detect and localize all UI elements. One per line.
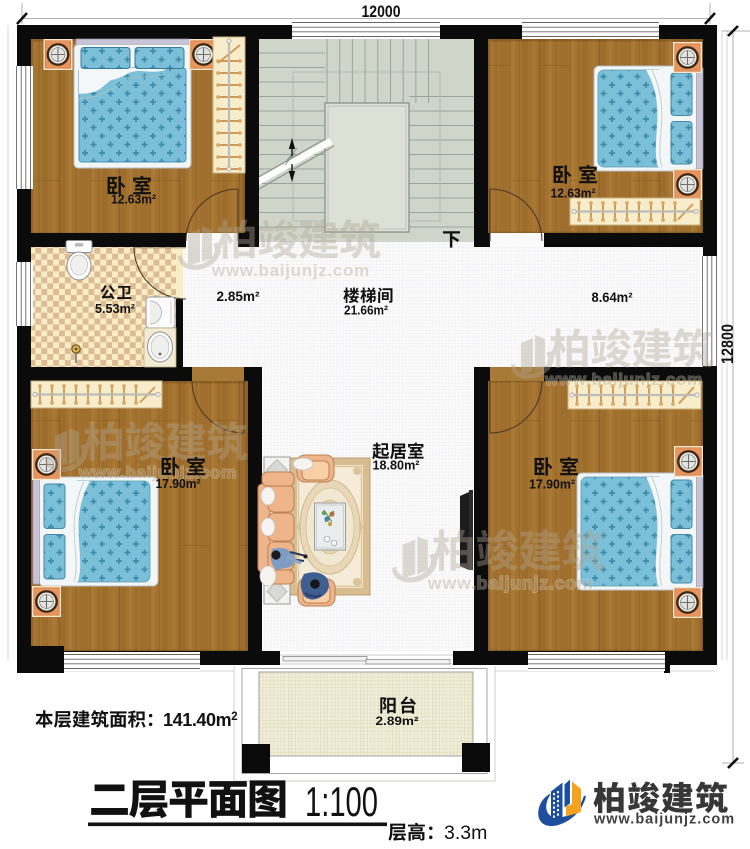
svg-text:17.90m²: 17.90m²: [529, 477, 576, 492]
svg-text:1:100: 1:100: [305, 778, 378, 825]
svg-text:www.baijunjz.com: www.baijunjz.com: [593, 812, 735, 828]
svg-text:8.64m²: 8.64m²: [592, 289, 633, 305]
svg-text:12.63m²: 12.63m²: [111, 192, 157, 207]
svg-text:21.66m²: 21.66m²: [344, 304, 388, 318]
svg-text:2.89m²: 2.89m²: [376, 714, 419, 728]
svg-text:3.3m: 3.3m: [444, 822, 487, 844]
svg-text:17.90m²: 17.90m²: [156, 476, 202, 491]
svg-text:12800: 12800: [718, 324, 737, 364]
svg-text:18.80m²: 18.80m²: [373, 459, 420, 473]
svg-text:2.85m²: 2.85m²: [217, 289, 260, 304]
svg-text:5.53m²: 5.53m²: [95, 302, 135, 316]
svg-text:12.63m²: 12.63m²: [551, 186, 597, 201]
svg-text:141.40m2: 141.40m2: [163, 710, 237, 730]
svg-text:12000: 12000: [362, 2, 401, 21]
